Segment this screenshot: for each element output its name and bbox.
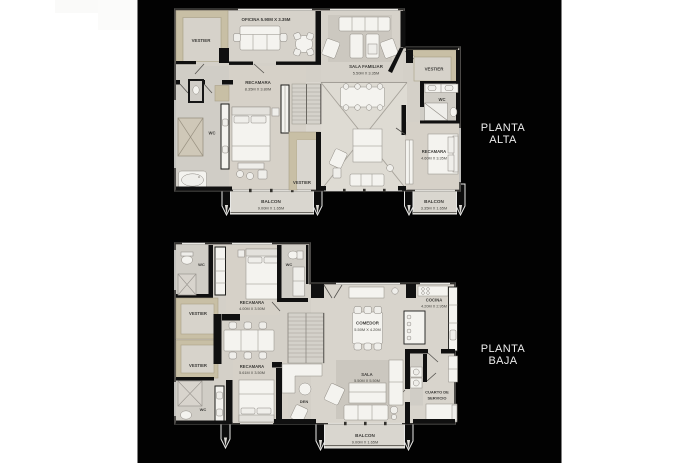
svg-text:SERVICIO: SERVICIO — [427, 396, 446, 401]
svg-text:CUARTO DE: CUARTO DE — [425, 390, 449, 395]
svg-text:9.00M X 1.65M: 9.00M X 1.65M — [258, 206, 284, 211]
svg-text:OFICINA 5.90M X 3.35M: OFICINA 5.90M X 3.35M — [242, 17, 291, 22]
svg-text:VESTIER: VESTIER — [293, 180, 311, 185]
svg-text:PLANTA: PLANTA — [481, 343, 526, 355]
svg-text:ALTA: ALTA — [489, 134, 517, 146]
svg-text:BAJA: BAJA — [488, 355, 517, 367]
svg-text:RECAMARA: RECAMARA — [422, 149, 446, 154]
svg-text:SALA: SALA — [361, 372, 372, 377]
svg-text:4.00M X 3.50M: 4.00M X 3.50M — [239, 307, 265, 311]
svg-text:WC: WC — [198, 262, 205, 267]
svg-text:DEN: DEN — [300, 399, 309, 404]
svg-text:BALCON: BALCON — [261, 199, 281, 204]
svg-text:COMEDOR: COMEDOR — [356, 321, 380, 326]
svg-text:RECAMARA: RECAMARA — [240, 300, 264, 305]
svg-text:5.61M X 3.50M: 5.61M X 3.50M — [239, 371, 265, 375]
svg-text:4.60M X 3.35M: 4.60M X 3.35M — [421, 157, 447, 161]
svg-text:3.35M X 1.65M: 3.35M X 1.65M — [421, 206, 447, 211]
svg-text:VESTIER: VESTIER — [192, 38, 212, 43]
svg-text:WC: WC — [286, 262, 293, 267]
svg-text:WC: WC — [439, 97, 446, 102]
svg-text:BALCON: BALCON — [424, 199, 444, 204]
svg-text:8.35M X 3.80M: 8.35M X 3.80M — [245, 87, 271, 92]
svg-text:RECAMARA: RECAMARA — [245, 80, 271, 85]
svg-text:PLANTA: PLANTA — [481, 122, 526, 134]
svg-text:SALA FAMILIAR: SALA FAMILIAR — [349, 64, 384, 69]
svg-text:COCINA: COCINA — [426, 298, 443, 303]
svg-text:4.20M X 2.95M: 4.20M X 2.95M — [421, 305, 447, 309]
svg-text:5.50M X 3.35M: 5.50M X 3.35M — [353, 71, 379, 76]
svg-text:WC: WC — [200, 407, 207, 412]
svg-text:WC: WC — [209, 131, 216, 136]
svg-text:BALCON: BALCON — [355, 433, 375, 438]
svg-text:VESTIER: VESTIER — [425, 67, 445, 72]
svg-text:5.50M X 5.50M: 5.50M X 5.50M — [354, 379, 380, 383]
svg-text:9.00M X 1.65M: 9.00M X 1.65M — [352, 440, 378, 445]
svg-text:RECAMARA: RECAMARA — [240, 364, 264, 369]
svg-text:VESTIER: VESTIER — [189, 311, 207, 316]
svg-text:5.50M X 4.20M: 5.50M X 4.20M — [354, 327, 380, 332]
svg-text:VESTIER: VESTIER — [189, 363, 207, 368]
